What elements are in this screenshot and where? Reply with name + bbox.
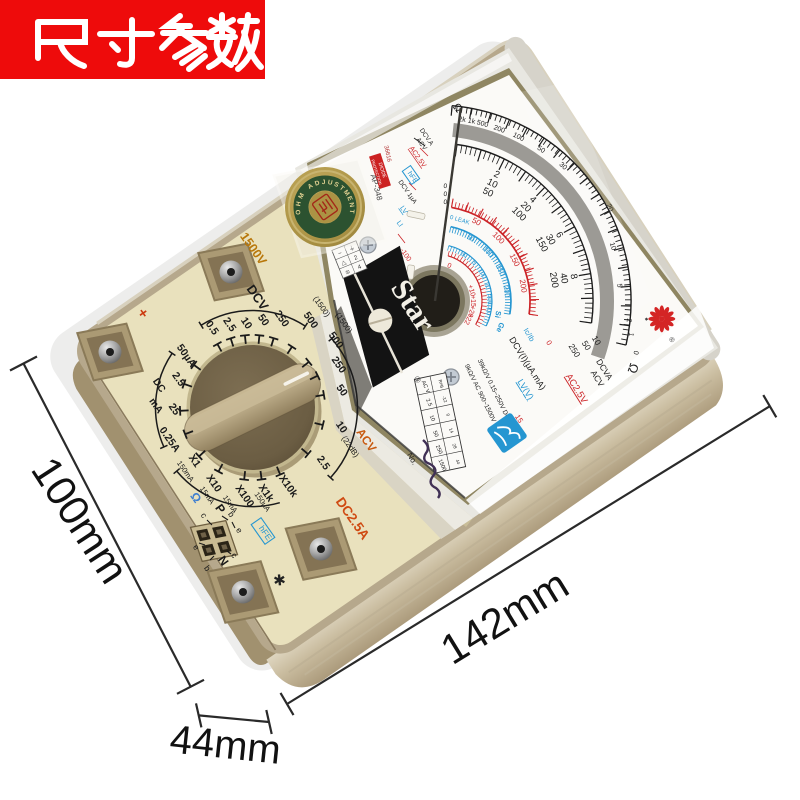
svg-text:T: T <box>348 209 355 214</box>
svg-text:O: O <box>295 209 303 215</box>
svg-text:5: 5 <box>615 283 622 288</box>
svg-text:2: 2 <box>625 318 632 323</box>
